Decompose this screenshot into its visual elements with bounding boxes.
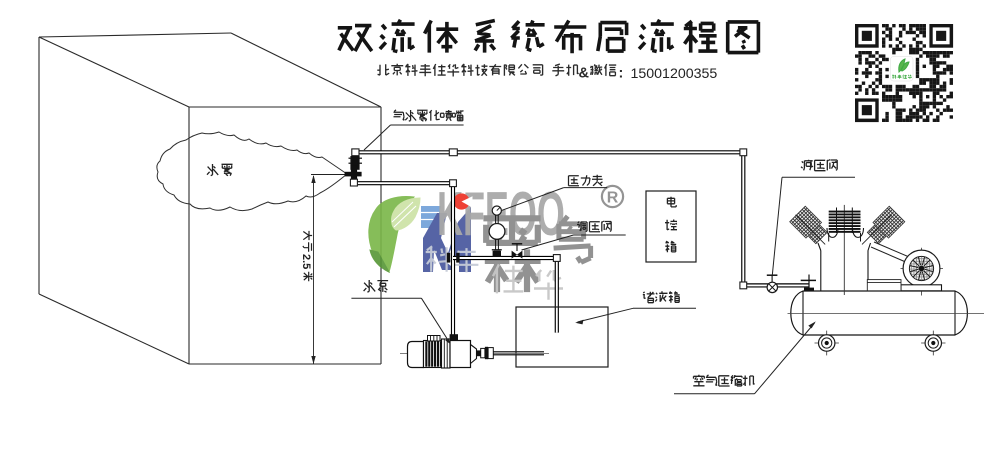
svg-text:15001200355: 15001200355	[631, 66, 718, 82]
svg-text:2.5: 2.5	[300, 254, 312, 269]
svg-text::: :	[619, 66, 624, 82]
svg-text:&: &	[579, 66, 590, 82]
svg-text:R: R	[607, 190, 619, 207]
